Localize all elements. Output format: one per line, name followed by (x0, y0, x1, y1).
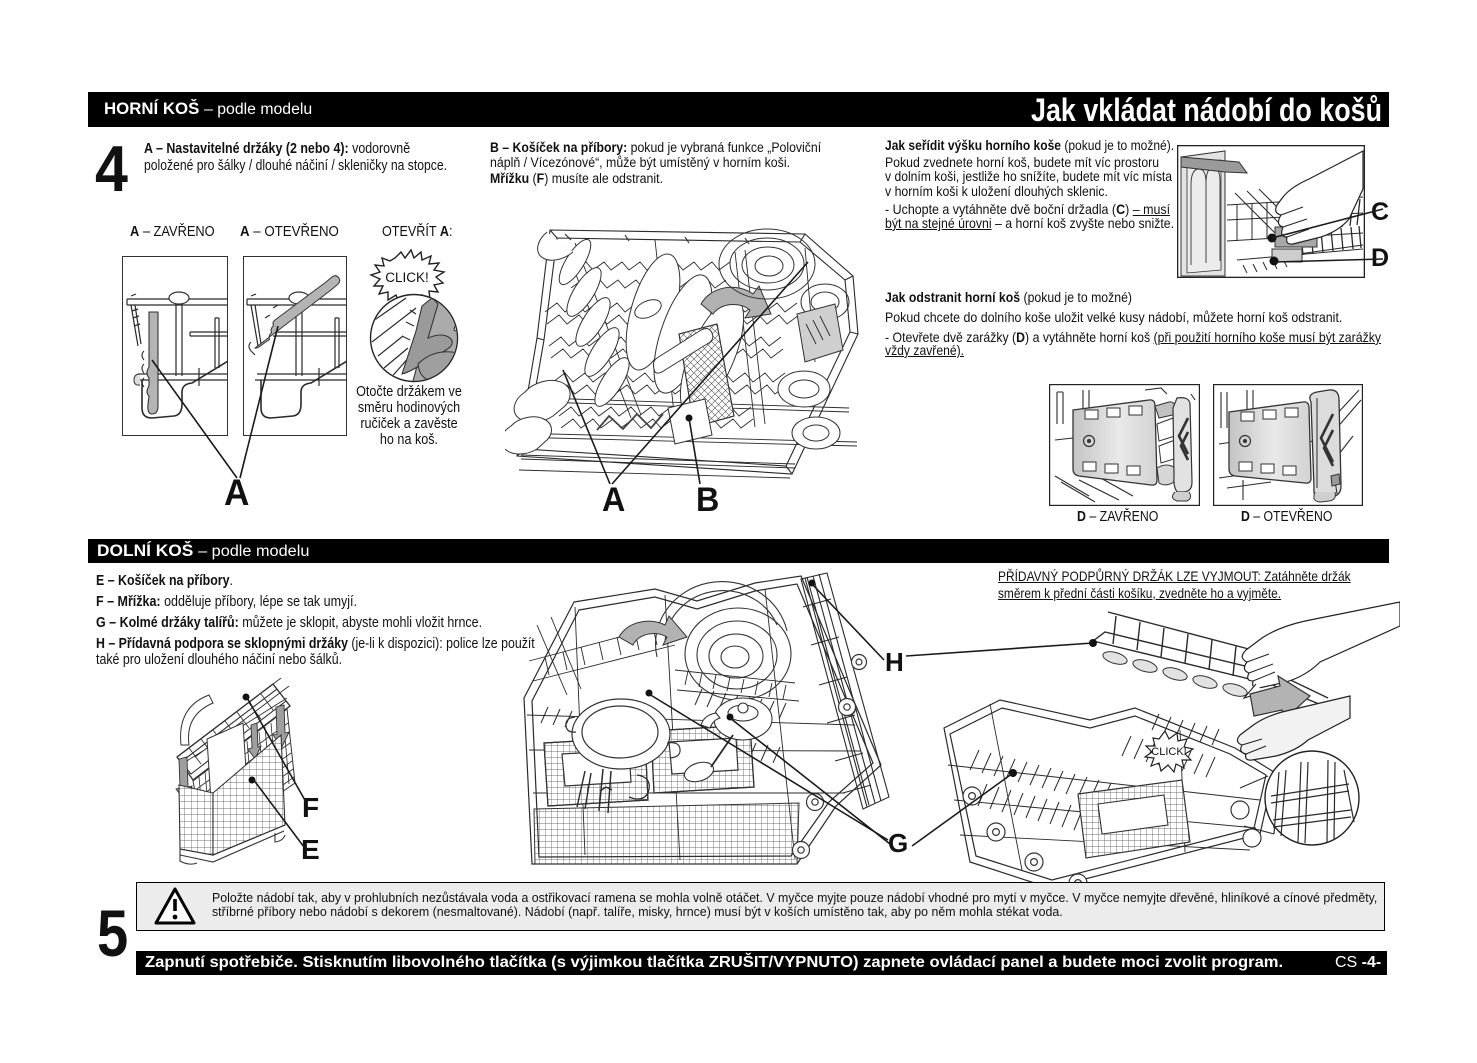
svg-text:CLICK!: CLICK! (1151, 746, 1186, 758)
svg-text:CLICK!: CLICK! (385, 270, 429, 285)
